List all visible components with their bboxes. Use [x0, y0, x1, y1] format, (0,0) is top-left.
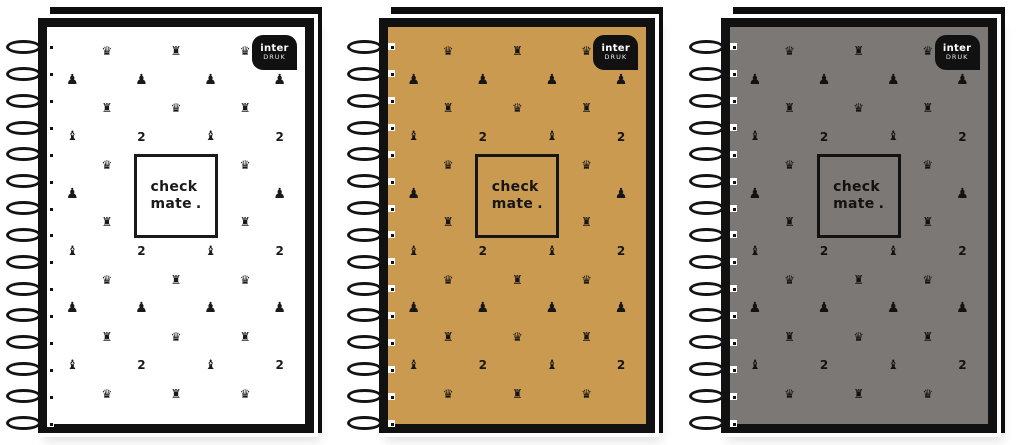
pawn-icon: ♟: [876, 66, 911, 95]
punch-hole: [730, 178, 737, 185]
knight-icon: 2: [945, 351, 980, 380]
notebook-white: ♛♜♛♟♟♟♟♜♛♜♝2♝2♛♛♟♟♜♜♝2♝2♛♜♛♟♟♟♟♜♛♜♝2♝2♛♜…: [0, 0, 341, 445]
punch-hole: [388, 312, 395, 319]
checkmate-line1: check: [492, 179, 543, 196]
rook-icon: ♜: [90, 208, 125, 237]
queen-icon: ♛: [500, 94, 535, 123]
bishop-icon: ♝: [535, 123, 570, 152]
spiral-coil-icon: [6, 255, 41, 269]
pawn-icon: ♟: [262, 180, 297, 209]
bishop-icon: ♝: [738, 123, 773, 152]
interdruk-logo: inter DRUK: [593, 35, 638, 70]
queen-icon: ♛: [90, 265, 125, 294]
bishop-icon: ♝: [55, 123, 90, 152]
pawn-icon: ♟: [193, 66, 228, 95]
punch-hole: [730, 43, 737, 50]
punch-hole: [388, 124, 395, 131]
spiral-coil-icon: [347, 40, 382, 54]
spiral-coil-icon: [347, 147, 382, 161]
punch-hole: [47, 178, 54, 185]
pawn-icon: ♟: [124, 294, 159, 323]
notebook-shelf: ♛♜♛♟♟♟♟♜♛♜♝2♝2♛♛♟♟♜♜♝2♝2♛♜♛♟♟♟♟♜♛♜♝2♝2♛♜…: [0, 0, 1024, 445]
punch-hole: [730, 70, 737, 77]
knight-icon: 2: [124, 237, 159, 266]
checkmate-period: .: [879, 196, 885, 212]
checkmate-line1: check: [833, 179, 884, 196]
queen-icon: ♛: [90, 379, 125, 408]
punch-hole: [47, 339, 54, 346]
punch-hole: [47, 393, 54, 400]
rook-icon: ♜: [841, 37, 876, 66]
bishop-icon: ♝: [193, 351, 228, 380]
pawn-icon: ♟: [738, 294, 773, 323]
rook-icon: ♜: [841, 265, 876, 294]
bishop-icon: ♝: [55, 237, 90, 266]
front-cover: ♛♜♛♟♟♟♟♜♛♜♝2♝2♛♛♟♟♜♜♝2♝2♛♜♛♟♟♟♟♜♛♜♝2♝2♛♜…: [721, 18, 997, 433]
pawn-icon: ♟: [535, 66, 570, 95]
rook-icon: ♜: [90, 322, 125, 351]
queen-icon: ♛: [228, 151, 263, 180]
spiral-coil-icon: [689, 362, 724, 376]
rook-icon: ♜: [772, 94, 807, 123]
interdruk-logo: inter DRUK: [935, 35, 980, 70]
brand-name-line2: DRUK: [605, 54, 628, 62]
punch-holes: [388, 43, 396, 427]
bishop-icon: ♝: [396, 237, 431, 266]
spiral-coil-icon: [347, 416, 382, 430]
queen-icon: ♛: [772, 151, 807, 180]
spiral-coil-icon: [347, 255, 382, 269]
pawn-icon: ♟: [604, 294, 639, 323]
rook-icon: ♜: [500, 37, 535, 66]
punch-hole: [388, 43, 395, 50]
pawn-icon: ♟: [124, 66, 159, 95]
rook-icon: ♜: [569, 208, 604, 237]
bishop-icon: ♝: [535, 351, 570, 380]
spiral-coil-icon: [689, 147, 724, 161]
bishop-icon: ♝: [876, 123, 911, 152]
punch-hole: [388, 97, 395, 104]
punch-holes: [730, 43, 738, 427]
queen-icon: ♛: [911, 265, 946, 294]
punch-hole: [47, 285, 54, 292]
spiral-coil-icon: [689, 174, 724, 188]
rook-icon: ♜: [159, 37, 194, 66]
spiral-coil-icon: [689, 335, 724, 349]
pawn-icon: ♟: [945, 180, 980, 209]
spiral-coil-icon: [347, 67, 382, 81]
spiral-coil-icon: [6, 147, 41, 161]
spiral-binding: [689, 40, 725, 430]
queen-icon: ♛: [841, 94, 876, 123]
punch-holes: [47, 43, 55, 427]
pawn-icon: ♟: [604, 180, 639, 209]
knight-icon: 2: [945, 123, 980, 152]
knight-icon: 2: [124, 123, 159, 152]
rook-icon: ♜: [911, 208, 946, 237]
punch-hole: [388, 70, 395, 77]
rook-icon: ♜: [159, 379, 194, 408]
bishop-icon: ♝: [738, 351, 773, 380]
knight-icon: 2: [807, 237, 842, 266]
front-cover: ♛♜♛♟♟♟♟♜♛♜♝2♝2♛♛♟♟♜♜♝2♝2♛♜♛♟♟♟♟♜♛♜♝2♝2♛♜…: [379, 18, 655, 433]
punch-hole: [388, 151, 395, 158]
checkmate-label: check mate.: [833, 179, 884, 213]
punch-hole: [47, 97, 54, 104]
interdruk-logo: inter DRUK: [252, 35, 297, 70]
punch-hole: [388, 178, 395, 185]
queen-icon: ♛: [431, 151, 466, 180]
rook-icon: ♜: [772, 322, 807, 351]
pawn-icon: ♟: [945, 294, 980, 323]
spiral-coil-icon: [347, 94, 382, 108]
spiral-coil-icon: [6, 308, 41, 322]
knight-icon: 2: [465, 123, 500, 152]
pawn-icon: ♟: [55, 294, 90, 323]
spiral-coil-icon: [347, 228, 382, 242]
knight-icon: 2: [262, 123, 297, 152]
spiral-coil-icon: [6, 416, 41, 430]
knight-icon: 2: [465, 237, 500, 266]
knight-icon: 2: [262, 237, 297, 266]
punch-hole: [388, 258, 395, 265]
spiral-coil-icon: [689, 389, 724, 403]
punch-hole: [388, 205, 395, 212]
spiral-coil-icon: [347, 308, 382, 322]
checkmate-line2: mate: [833, 196, 874, 212]
rook-icon: ♜: [911, 94, 946, 123]
pawn-icon: ♟: [465, 294, 500, 323]
bishop-icon: ♝: [535, 237, 570, 266]
punch-hole: [730, 97, 737, 104]
spiral-coil-icon: [6, 67, 41, 81]
punch-hole: [47, 231, 54, 238]
rook-icon: ♜: [569, 322, 604, 351]
rook-icon: ♜: [90, 94, 125, 123]
rook-icon: ♜: [500, 379, 535, 408]
spiral-coil-icon: [347, 121, 382, 135]
queen-icon: ♛: [911, 379, 946, 408]
punch-hole: [730, 258, 737, 265]
spiral-coil-icon: [6, 40, 41, 54]
brand-name-line2: DRUK: [946, 54, 969, 62]
spiral-coil-icon: [347, 362, 382, 376]
spiral-coil-icon: [689, 40, 724, 54]
knight-icon: 2: [124, 351, 159, 380]
punch-hole: [730, 312, 737, 319]
knight-icon: 2: [604, 351, 639, 380]
knight-icon: 2: [604, 123, 639, 152]
queen-icon: ♛: [431, 379, 466, 408]
pawn-icon: ♟: [807, 66, 842, 95]
spiral-coil-icon: [689, 416, 724, 430]
bishop-icon: ♝: [396, 123, 431, 152]
punch-hole: [730, 393, 737, 400]
bishop-icon: ♝: [396, 351, 431, 380]
front-cover: ♛♜♛♟♟♟♟♜♛♜♝2♝2♛♛♟♟♜♜♝2♝2♛♜♛♟♟♟♟♜♛♜♝2♝2♛♜…: [38, 18, 314, 433]
queen-icon: ♛: [159, 94, 194, 123]
spiral-coil-icon: [347, 201, 382, 215]
pawn-icon: ♟: [396, 66, 431, 95]
checkmate-period: .: [196, 196, 202, 212]
punch-hole: [47, 205, 54, 212]
punch-hole: [388, 231, 395, 238]
pawn-icon: ♟: [193, 294, 228, 323]
queen-icon: ♛: [500, 322, 535, 351]
pawn-icon: ♟: [535, 294, 570, 323]
checkmate-line2: mate: [492, 196, 533, 212]
rook-icon: ♜: [431, 208, 466, 237]
pawn-icon: ♟: [738, 180, 773, 209]
pawn-icon: ♟: [55, 180, 90, 209]
pawn-icon: ♟: [738, 66, 773, 95]
spiral-coil-icon: [6, 335, 41, 349]
spiral-coil-icon: [689, 282, 724, 296]
spiral-coil-icon: [689, 201, 724, 215]
queen-icon: ♛: [431, 265, 466, 294]
pawn-icon: ♟: [55, 66, 90, 95]
spiral-binding: [6, 40, 42, 430]
queen-icon: ♛: [228, 265, 263, 294]
queen-icon: ♛: [841, 322, 876, 351]
spiral-coil-icon: [6, 282, 41, 296]
queen-icon: ♛: [90, 37, 125, 66]
punch-hole: [47, 124, 54, 131]
notebook-gray: ♛♜♛♟♟♟♟♜♛♜♝2♝2♛♛♟♟♜♜♝2♝2♛♜♛♟♟♟♟♜♛♜♝2♝2♛♜…: [683, 0, 1024, 445]
checkmate-period: .: [537, 196, 543, 212]
rook-icon: ♜: [911, 322, 946, 351]
spiral-coil-icon: [689, 228, 724, 242]
spiral-coil-icon: [6, 121, 41, 135]
pawn-icon: ♟: [396, 294, 431, 323]
bishop-icon: ♝: [876, 237, 911, 266]
punch-hole: [47, 70, 54, 77]
bishop-icon: ♝: [876, 351, 911, 380]
spiral-coil-icon: [347, 282, 382, 296]
pawn-icon: ♟: [876, 294, 911, 323]
knight-icon: 2: [945, 237, 980, 266]
knight-icon: 2: [465, 351, 500, 380]
punch-hole: [730, 285, 737, 292]
queen-icon: ♛: [569, 265, 604, 294]
punch-hole: [730, 151, 737, 158]
checkmate-frame: check mate.: [475, 154, 559, 238]
punch-hole: [388, 285, 395, 292]
pawn-icon: ♟: [262, 294, 297, 323]
queen-icon: ♛: [772, 379, 807, 408]
spiral-coil-icon: [347, 335, 382, 349]
spiral-coil-icon: [689, 308, 724, 322]
queen-icon: ♛: [569, 151, 604, 180]
spiral-coil-icon: [6, 362, 41, 376]
punch-hole: [730, 366, 737, 373]
punch-hole: [47, 420, 54, 427]
pawn-icon: ♟: [396, 180, 431, 209]
pawn-icon: ♟: [465, 66, 500, 95]
rook-icon: ♜: [228, 208, 263, 237]
punch-hole: [47, 43, 54, 50]
spiral-coil-icon: [6, 389, 41, 403]
checkmate-frame: check mate.: [134, 154, 218, 238]
knight-icon: 2: [604, 237, 639, 266]
spiral-coil-icon: [689, 121, 724, 135]
bishop-icon: ♝: [193, 123, 228, 152]
spiral-coil-icon: [6, 228, 41, 242]
punch-hole: [388, 420, 395, 427]
knight-icon: 2: [807, 123, 842, 152]
knight-icon: 2: [807, 351, 842, 380]
spiral-coil-icon: [6, 201, 41, 215]
rook-icon: ♜: [841, 379, 876, 408]
checkmate-label: check mate.: [150, 179, 201, 213]
notebook-gold: ♛♜♛♟♟♟♟♜♛♜♝2♝2♛♛♟♟♜♜♝2♝2♛♜♛♟♟♟♟♜♛♜♝2♝2♛♜…: [341, 0, 682, 445]
queen-icon: ♛: [569, 379, 604, 408]
rook-icon: ♜: [159, 265, 194, 294]
punch-hole: [47, 258, 54, 265]
spiral-coil-icon: [347, 389, 382, 403]
spiral-binding: [347, 40, 383, 430]
spiral-coil-icon: [6, 94, 41, 108]
punch-hole: [388, 339, 395, 346]
punch-hole: [730, 231, 737, 238]
spiral-coil-icon: [347, 174, 382, 188]
bishop-icon: ♝: [193, 237, 228, 266]
checkmate-label: check mate.: [492, 179, 543, 213]
spiral-coil-icon: [689, 94, 724, 108]
rook-icon: ♜: [228, 322, 263, 351]
queen-icon: ♛: [228, 379, 263, 408]
rook-icon: ♜: [772, 208, 807, 237]
knight-icon: 2: [262, 351, 297, 380]
queen-icon: ♛: [159, 322, 194, 351]
spiral-coil-icon: [6, 174, 41, 188]
pawn-icon: ♟: [807, 294, 842, 323]
spiral-coil-icon: [689, 67, 724, 81]
checkmate-line2: mate: [150, 196, 191, 212]
spiral-coil-icon: [689, 255, 724, 269]
queen-icon: ♛: [772, 37, 807, 66]
checkmate-line1: check: [150, 179, 201, 196]
queen-icon: ♛: [431, 37, 466, 66]
punch-hole: [730, 339, 737, 346]
rook-icon: ♜: [228, 94, 263, 123]
punch-hole: [47, 366, 54, 373]
punch-hole: [730, 124, 737, 131]
checkmate-frame: check mate.: [817, 154, 901, 238]
rook-icon: ♜: [569, 94, 604, 123]
rook-icon: ♜: [500, 265, 535, 294]
punch-hole: [388, 393, 395, 400]
bishop-icon: ♝: [55, 351, 90, 380]
punch-hole: [388, 366, 395, 373]
queen-icon: ♛: [90, 151, 125, 180]
rook-icon: ♜: [431, 322, 466, 351]
brand-name-line2: DRUK: [263, 54, 286, 62]
rook-icon: ♜: [431, 94, 466, 123]
punch-hole: [730, 420, 737, 427]
queen-icon: ♛: [772, 265, 807, 294]
punch-hole: [47, 151, 54, 158]
bishop-icon: ♝: [738, 237, 773, 266]
punch-hole: [47, 312, 54, 319]
punch-hole: [730, 205, 737, 212]
queen-icon: ♛: [911, 151, 946, 180]
